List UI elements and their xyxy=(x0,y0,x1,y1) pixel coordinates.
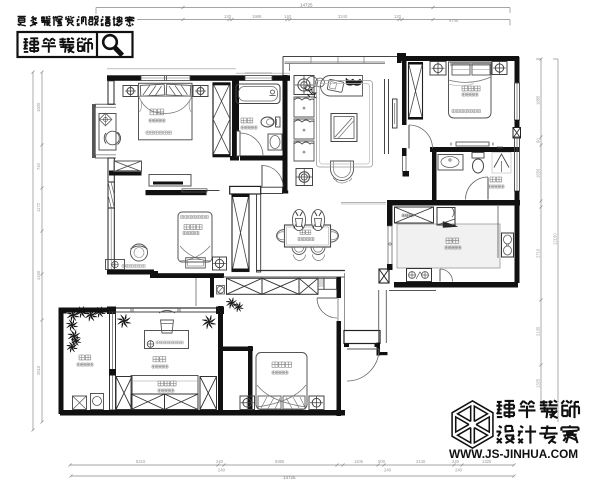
svg-text:2140: 2140 xyxy=(416,459,426,464)
svg-text:240: 240 xyxy=(218,468,226,473)
svg-text:240: 240 xyxy=(216,459,224,464)
svg-text:1600: 1600 xyxy=(36,102,41,112)
svg-text:120: 120 xyxy=(394,14,402,19)
svg-text:1650: 1650 xyxy=(536,168,541,178)
svg-text:2135: 2135 xyxy=(536,326,541,336)
svg-text:240: 240 xyxy=(384,468,392,473)
svg-text:240: 240 xyxy=(455,468,463,473)
svg-text:1325: 1325 xyxy=(536,378,541,388)
svg-text:12150: 12150 xyxy=(553,233,558,245)
svg-text:14725: 14725 xyxy=(300,3,313,8)
svg-text:6210: 6210 xyxy=(136,459,146,464)
svg-text:2710: 2710 xyxy=(536,248,541,258)
svg-text:1988: 1988 xyxy=(252,14,262,19)
svg-text:9365: 9365 xyxy=(275,459,285,464)
svg-text:1105: 1105 xyxy=(354,459,364,464)
svg-text:4160: 4160 xyxy=(36,270,41,280)
svg-text:1172: 1172 xyxy=(36,202,41,212)
svg-text:14725: 14725 xyxy=(283,475,296,480)
svg-text:2610: 2610 xyxy=(36,365,41,375)
svg-text:WWW.JS-JINHUA.COM: WWW.JS-JINHUA.COM xyxy=(449,447,578,461)
svg-text:1885: 1885 xyxy=(536,95,541,105)
svg-text:9746: 9746 xyxy=(449,18,459,23)
svg-text:90: 90 xyxy=(536,138,541,143)
svg-text:500: 500 xyxy=(497,146,503,150)
svg-text:140: 140 xyxy=(284,14,292,19)
svg-text:3240: 3240 xyxy=(338,14,348,19)
svg-text:120: 120 xyxy=(224,14,232,19)
svg-text:500: 500 xyxy=(378,459,386,464)
svg-text:740: 740 xyxy=(36,162,41,170)
